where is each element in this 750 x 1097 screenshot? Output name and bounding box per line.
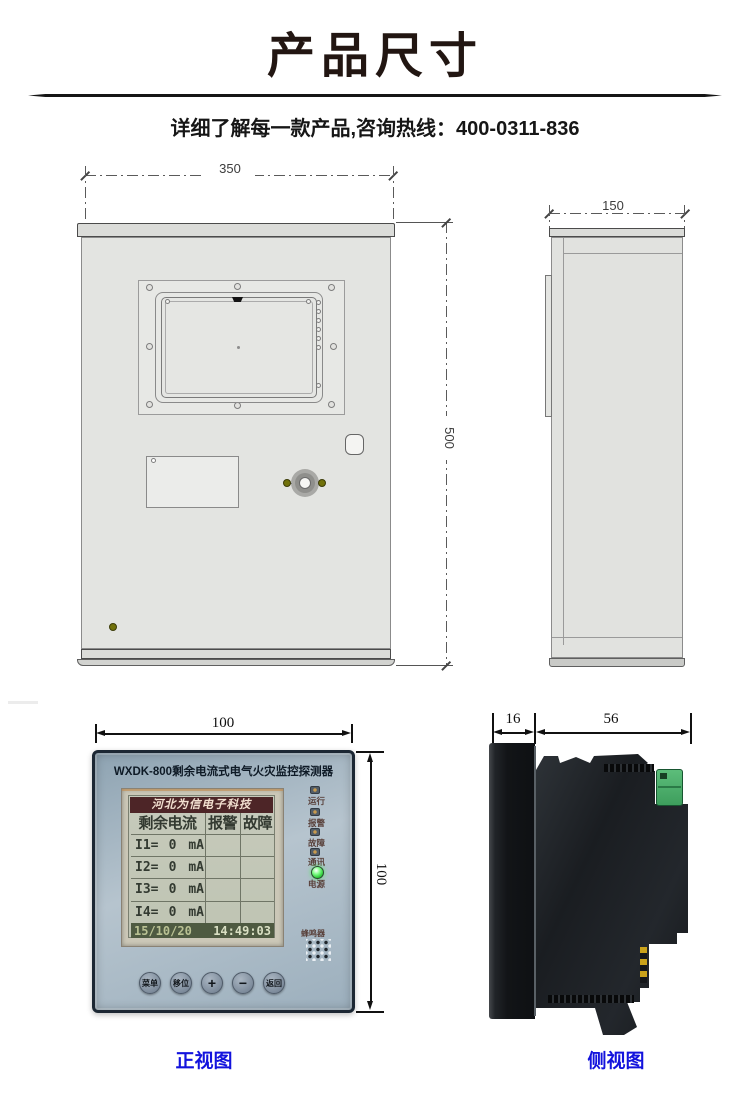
extension-line	[351, 724, 353, 743]
extension-line	[393, 166, 394, 223]
lcd-row-i2: I2=0mA	[131, 857, 204, 878]
lcd-col-current: 剩余电流	[131, 813, 204, 834]
screw-icon	[146, 284, 153, 291]
extension-line	[690, 713, 692, 744]
arrow-icon	[367, 1001, 373, 1010]
lcd-time: 14:49:03	[213, 924, 271, 938]
channel-unit: mA	[180, 882, 204, 897]
dim-line	[543, 732, 683, 734]
indicator-dot-icon	[109, 623, 117, 631]
channel-label: I1=	[131, 838, 165, 853]
alarm-led-icon	[310, 808, 320, 816]
plus-button[interactable]: +	[201, 972, 223, 994]
lcd-status-bar: 15/10/20 14:49:03	[131, 923, 274, 938]
door-edge-line	[563, 238, 564, 645]
return-button[interactable]: 返回	[263, 972, 285, 994]
channel-label: I2=	[131, 860, 165, 875]
indicator-dot-icon	[283, 479, 291, 487]
hotline-subtitle: 详细了解每一款产品,咨询热线：400-0311-836	[0, 112, 750, 141]
cabinet-top-cap	[77, 223, 395, 237]
channel-label: I3=	[131, 882, 165, 897]
side-body	[551, 237, 683, 658]
run-led-label: 运行	[308, 797, 325, 806]
channel-value: 0	[165, 882, 181, 897]
panel-button-icon	[316, 318, 321, 323]
extension-line	[549, 205, 550, 230]
dim-line	[370, 761, 372, 1002]
arrow-icon	[342, 730, 351, 736]
lcd-brand-banner: 河北为信电子科技	[130, 797, 273, 813]
buzzer-label: 蜂鸣器	[301, 929, 325, 938]
lcd-col-alarm: 报警	[206, 813, 239, 834]
run-led-icon	[310, 786, 320, 794]
device-width-dim: 100	[200, 715, 246, 731]
dim-line	[104, 733, 343, 735]
side-view-caption: 侧视图	[580, 1046, 652, 1073]
panel-button-icon	[316, 383, 321, 388]
lcd-row-i1: I1=0mA	[131, 835, 204, 856]
device-depth-dim: 56	[589, 711, 633, 727]
cabinet-height-dim: 500	[442, 416, 456, 460]
side-base	[549, 658, 685, 667]
extension-line	[85, 166, 86, 223]
screw-icon	[328, 284, 335, 291]
side-top-cap	[549, 228, 685, 237]
screw-icon	[234, 283, 241, 290]
minus-button[interactable]: −	[232, 972, 254, 994]
screw-icon	[328, 401, 335, 408]
center-mark	[237, 346, 240, 349]
power-led-label: 电源	[308, 880, 325, 889]
inner-line	[552, 637, 682, 638]
label-hole-icon	[151, 458, 156, 463]
panel-button-icon	[316, 309, 321, 314]
lcd-date: 15/10/20	[134, 924, 192, 938]
corner-hole-icon	[306, 299, 311, 304]
indicator-dot-icon	[318, 479, 326, 487]
terminal-divider	[658, 786, 681, 788]
cabinet-depth-dim: 150	[591, 199, 635, 213]
channel-label: I4=	[131, 905, 165, 920]
vent-comb-icon	[548, 995, 634, 1003]
extension-line	[684, 205, 685, 230]
screw-icon	[234, 402, 241, 409]
fault-led-icon	[310, 828, 320, 836]
contact-pins-icon	[640, 947, 647, 983]
lcd-row-i4: I4=0mA	[131, 902, 204, 922]
channel-unit: mA	[180, 905, 204, 920]
dim-line	[549, 213, 685, 214]
channel-value: 0	[165, 838, 181, 853]
device-height-dim: 100	[373, 851, 389, 897]
watermark-artifact	[8, 701, 38, 704]
bezel-edge-highlight	[534, 746, 536, 1016]
corner-hole-icon	[165, 299, 170, 304]
page-title: 产品尺寸	[0, 16, 750, 86]
panel-button-icon	[316, 336, 321, 341]
channel-value: 0	[165, 905, 181, 920]
lcd-row-i3: I3=0mA	[131, 879, 204, 900]
door-hinge-bar	[545, 275, 552, 417]
vent-comb-icon	[604, 764, 654, 772]
device-front-bezel	[489, 743, 535, 1019]
cabinet-bottom-strip	[81, 649, 391, 659]
dim-line	[500, 732, 527, 734]
cabinet-base	[77, 659, 395, 666]
comm-led-icon	[310, 848, 320, 856]
lock-core	[299, 477, 311, 489]
keyhole	[345, 434, 364, 455]
fault-led-label: 故障	[308, 839, 325, 848]
terminal-hole-icon	[660, 773, 667, 779]
cabinet-width-dim: 350	[205, 162, 255, 176]
product-dimensions-page: 产品尺寸 详细了解每一款产品,咨询热线：400-0311-836 350 500	[0, 0, 750, 1097]
channel-unit: mA	[180, 838, 204, 853]
alarm-led-label: 报警	[308, 819, 325, 828]
lcd-grid-line	[240, 813, 241, 923]
device-model-title: WXDK-800剩余电流式电气火灾监控探测器	[96, 763, 351, 779]
divider-line	[28, 94, 722, 97]
screw-icon	[146, 401, 153, 408]
panel-button-icon	[316, 300, 321, 305]
channel-unit: mA	[180, 860, 204, 875]
panel-button-icon	[316, 327, 321, 332]
inner-line	[563, 253, 682, 254]
menu-button[interactable]: 菜单	[139, 972, 161, 994]
extension-line	[356, 1011, 384, 1013]
channel-value: 0	[165, 860, 181, 875]
panel-button-icon	[316, 345, 321, 350]
lcd-grid-line	[205, 813, 206, 923]
screw-icon	[146, 343, 153, 350]
buzzer-grille-icon	[306, 939, 331, 961]
front-view-caption: 正视图	[168, 1046, 240, 1073]
lcd-col-fault: 故障	[241, 813, 274, 834]
screw-icon	[330, 343, 337, 350]
device-bezel-dim: 16	[497, 711, 529, 727]
label-plate	[146, 456, 239, 508]
power-led-icon	[311, 866, 324, 879]
shift-button[interactable]: 移位	[170, 972, 192, 994]
